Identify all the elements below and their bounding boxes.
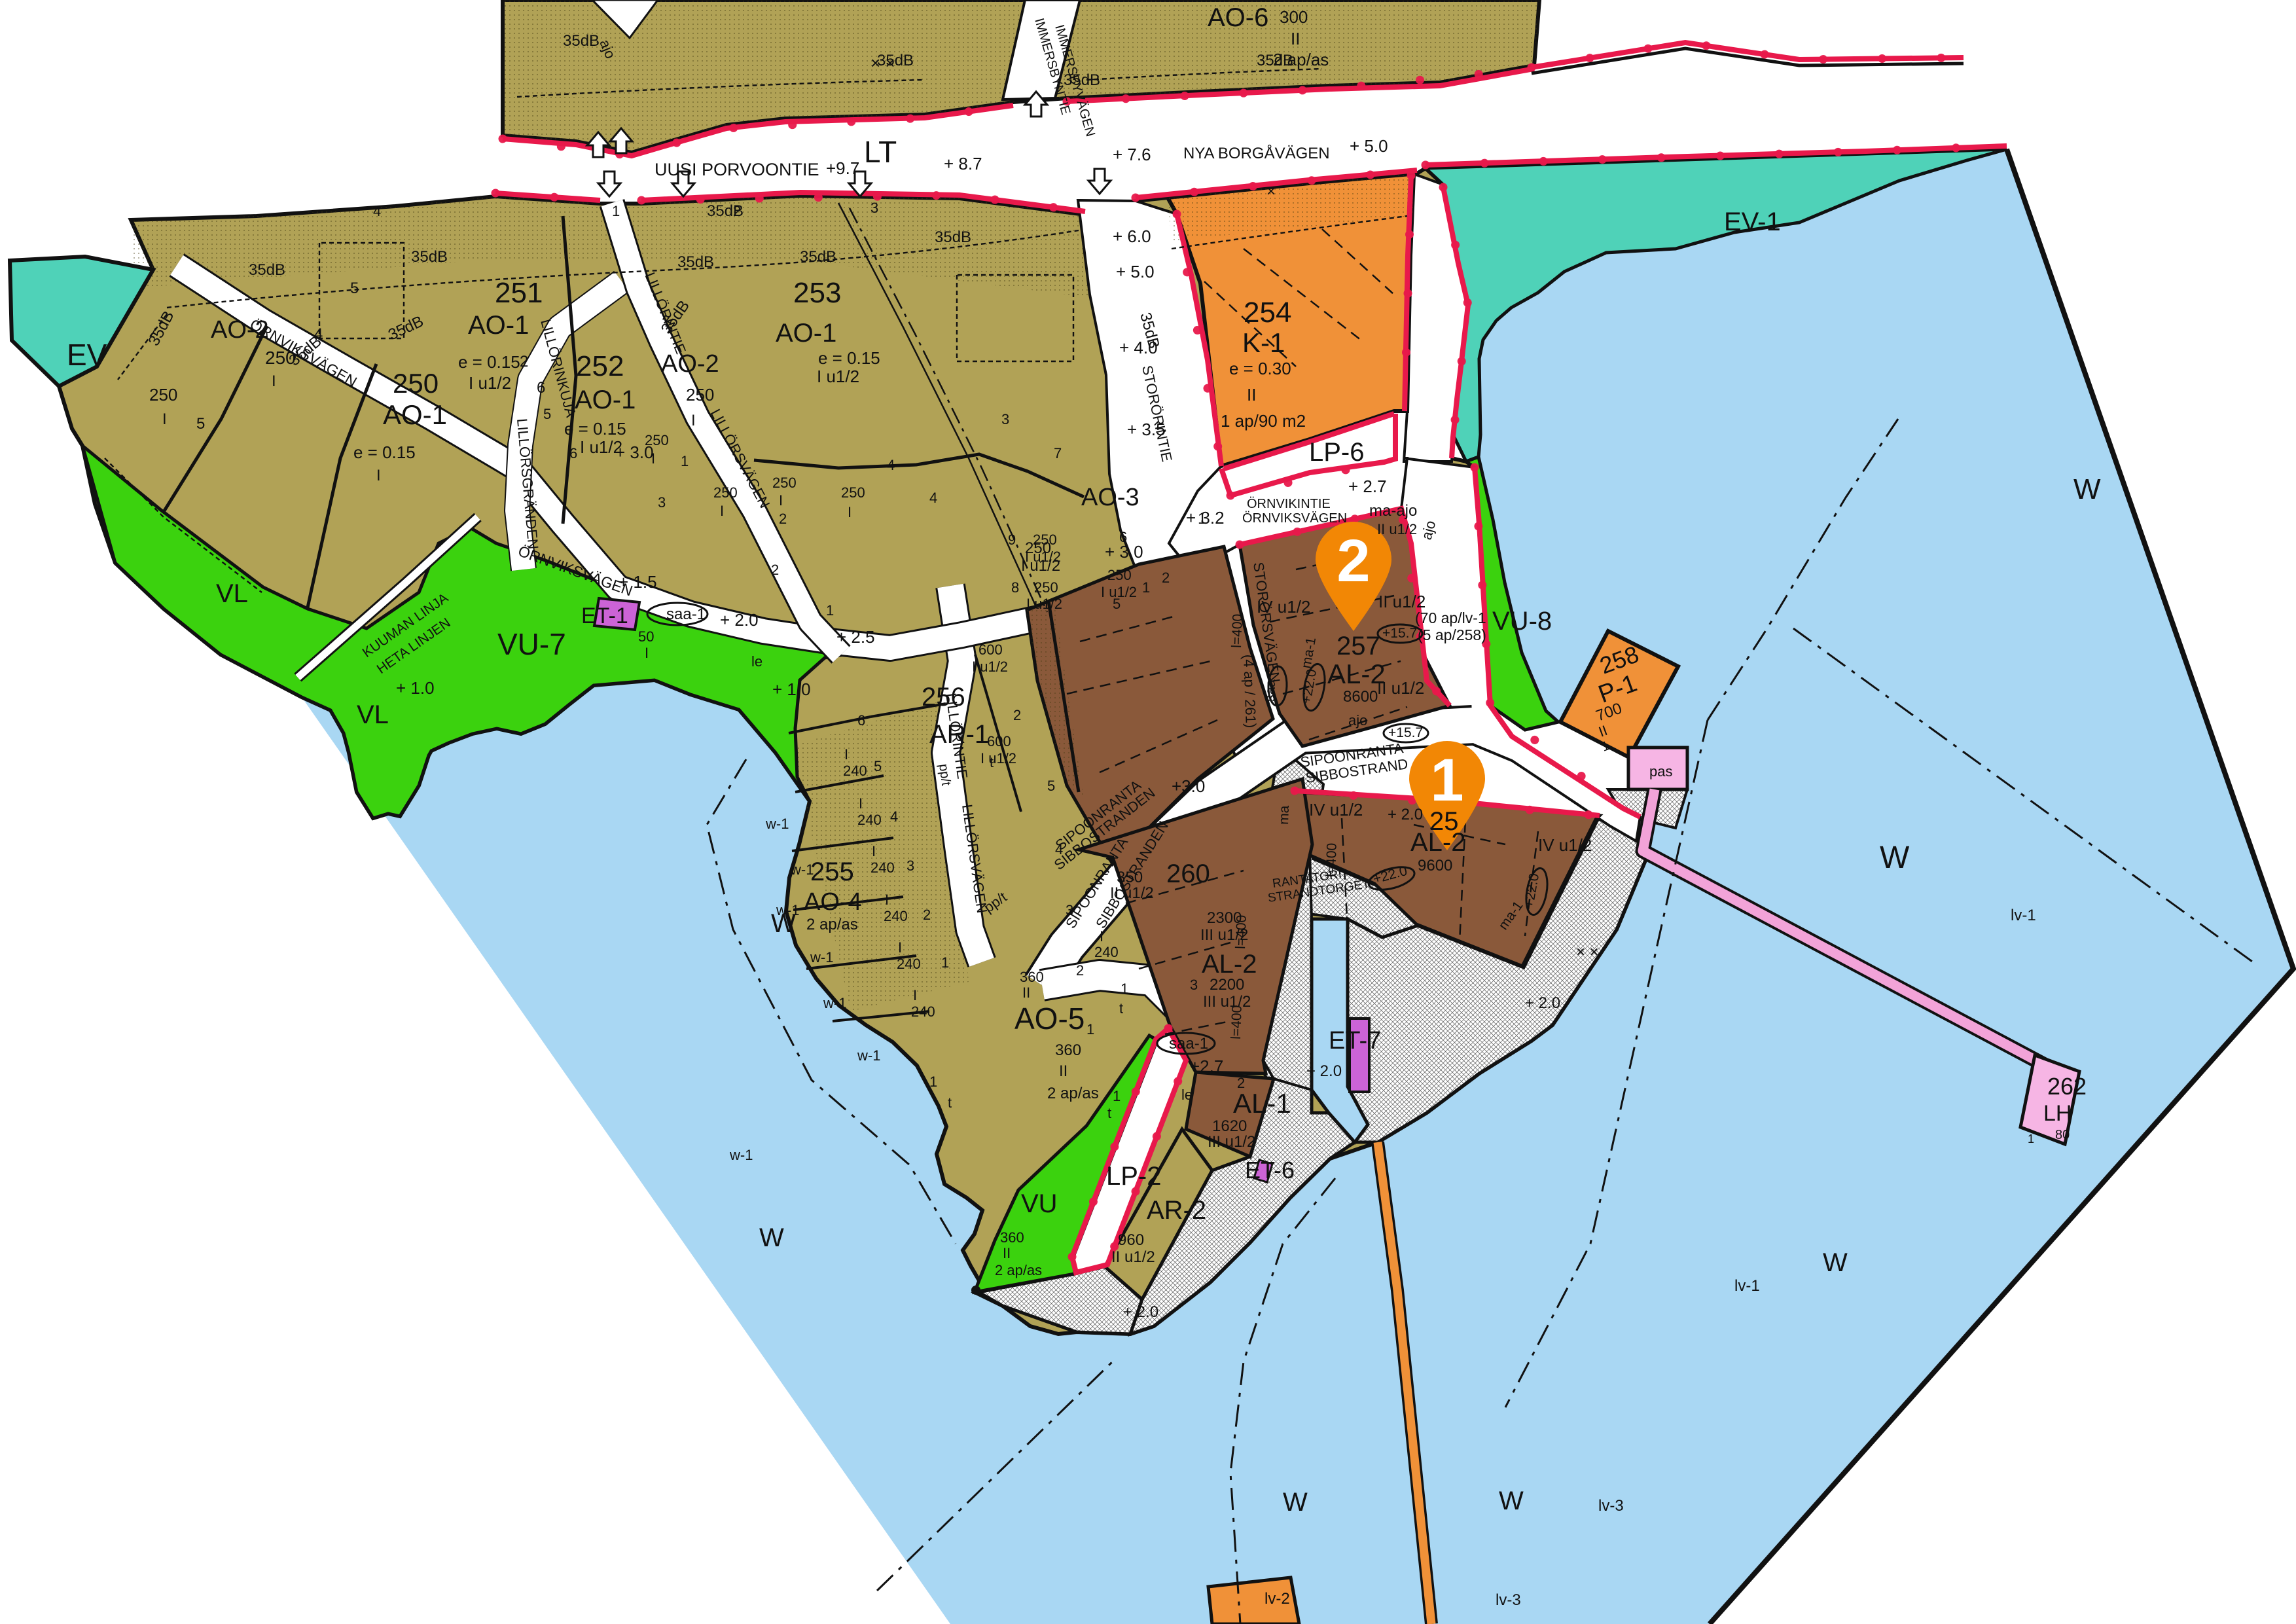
svg-text:+15.7: +15.7 <box>1382 626 1417 641</box>
svg-text:240: 240 <box>870 859 895 876</box>
svg-text:I u1/2: I u1/2 <box>1025 549 1061 565</box>
svg-text:I: I <box>779 492 783 509</box>
svg-text:35dB: 35dB <box>411 248 448 266</box>
svg-text:AO-1: AO-1 <box>468 311 529 340</box>
svg-text:3: 3 <box>1190 977 1198 993</box>
svg-text:2: 2 <box>771 562 779 578</box>
svg-text:EV-1: EV-1 <box>1724 208 1781 236</box>
svg-text:+ 5.0: + 5.0 <box>1350 136 1388 156</box>
svg-text:VU-7: VU-7 <box>497 627 566 661</box>
svg-text:+ 1.0: + 1.0 <box>396 678 435 698</box>
svg-text:t: t <box>1107 1105 1111 1121</box>
svg-text:(4 ap / 261): (4 ap / 261) <box>1240 654 1259 728</box>
svg-text:250: 250 <box>645 432 669 448</box>
svg-text:3: 3 <box>658 494 666 511</box>
svg-text:lv-2: lv-2 <box>1265 1590 1290 1608</box>
svg-text:EV: EV <box>67 338 107 372</box>
svg-text:+ 2.5: + 2.5 <box>836 627 875 647</box>
svg-text:I: I <box>885 892 889 908</box>
svg-text:I: I <box>162 410 167 428</box>
svg-text:II: II <box>1003 1245 1011 1261</box>
svg-text:AO-1: AO-1 <box>383 399 447 430</box>
svg-text:NYA BORGÅVÄGEN: NYA BORGÅVÄGEN <box>1183 144 1330 162</box>
svg-text:lv-3: lv-3 <box>1598 1497 1624 1515</box>
svg-text:lv-1: lv-1 <box>1734 1277 1760 1295</box>
svg-text:w-1: w-1 <box>765 816 789 832</box>
svg-text:252: 252 <box>576 350 624 382</box>
svg-text:LP-2: LP-2 <box>1106 1162 1162 1191</box>
svg-text:ET-6: ET-6 <box>1245 1157 1295 1183</box>
svg-text:254: 254 <box>1244 297 1291 329</box>
svg-text:35dB: 35dB <box>1257 52 1293 69</box>
svg-text:1 ap/90 m2: 1 ap/90 m2 <box>1221 411 1306 431</box>
svg-text:l=400: l=400 <box>1323 842 1340 877</box>
svg-text:AO-6: AO-6 <box>1208 3 1268 32</box>
svg-text:+ 2.0: + 2.0 <box>720 610 759 630</box>
svg-text:6: 6 <box>857 712 865 729</box>
svg-text:I: I <box>376 467 381 484</box>
svg-text:lv-3: lv-3 <box>1496 1591 1521 1609</box>
svg-text:1: 1 <box>1113 1088 1121 1104</box>
svg-text:250: 250 <box>393 368 439 399</box>
svg-text:w-1: w-1 <box>823 995 846 1011</box>
svg-text:I: I <box>1100 928 1103 945</box>
svg-text:pas: pas <box>1649 763 1672 780</box>
svg-text:1: 1 <box>1430 747 1463 814</box>
svg-text:360: 360 <box>1055 1041 1081 1059</box>
svg-text:× ×: × × <box>870 53 895 73</box>
svg-text:1: 1 <box>1198 510 1206 528</box>
svg-text:× ×: × × <box>1576 943 1599 961</box>
svg-text:1: 1 <box>1086 1021 1094 1038</box>
svg-text:2 ap/as: 2 ap/as <box>1047 1085 1099 1102</box>
svg-text:1: 1 <box>826 602 834 619</box>
svg-text:II: II <box>1247 385 1256 405</box>
svg-text:4: 4 <box>929 490 937 506</box>
svg-text:e = 0.15: e = 0.15 <box>818 348 880 368</box>
svg-text:+ 2.0: + 2.0 <box>1306 1062 1342 1080</box>
svg-text:t: t <box>948 1094 952 1111</box>
svg-text:251: 251 <box>495 277 543 309</box>
svg-text:2: 2 <box>1237 1075 1245 1091</box>
svg-text:I u1/2: I u1/2 <box>469 373 511 393</box>
svg-text:262: 262 <box>2047 1073 2087 1100</box>
svg-text:+2.7: +2.7 <box>1190 1056 1223 1076</box>
svg-text:3: 3 <box>906 857 914 874</box>
svg-text:×: × <box>1266 183 1276 200</box>
svg-text:VU: VU <box>1021 1189 1058 1218</box>
svg-text:240: 240 <box>897 956 921 972</box>
svg-text:260: 260 <box>1166 859 1210 888</box>
svg-text:2: 2 <box>733 203 741 219</box>
svg-text:w-1: w-1 <box>857 1047 880 1064</box>
svg-text:pp/t: pp/t <box>936 763 953 787</box>
svg-text:e = 0.15: e = 0.15 <box>564 419 626 439</box>
svg-text:AO-3: AO-3 <box>1081 484 1139 511</box>
svg-text:AO-2: AO-2 <box>661 350 719 378</box>
svg-text:35dB: 35dB <box>677 253 714 271</box>
svg-text:w-1: w-1 <box>729 1147 753 1163</box>
svg-text:I: I <box>691 412 696 429</box>
svg-text:+ 6.0: + 6.0 <box>1113 226 1151 246</box>
svg-text:3: 3 <box>1001 411 1009 427</box>
svg-text:I: I <box>848 504 852 520</box>
svg-text:e = 0.15: e = 0.15 <box>458 352 520 372</box>
svg-text:2: 2 <box>779 511 787 527</box>
svg-text:LT: LT <box>864 135 897 169</box>
svg-text:4: 4 <box>890 808 898 825</box>
svg-text:w-1: w-1 <box>810 949 833 965</box>
svg-text:W: W <box>1880 840 1910 875</box>
svg-text:+ 5.0: + 5.0 <box>1116 262 1155 281</box>
svg-text:(70 ap/lv-1: (70 ap/lv-1 <box>1415 609 1486 626</box>
svg-text:I u1/2: I u1/2 <box>980 750 1016 767</box>
svg-text:1: 1 <box>612 203 620 219</box>
svg-text:W: W <box>2073 473 2101 505</box>
svg-text:35dB: 35dB <box>800 248 836 266</box>
svg-text:35dB: 35dB <box>1064 71 1100 89</box>
svg-text:AL-2: AL-2 <box>1327 659 1386 689</box>
svg-text:1: 1 <box>681 453 689 469</box>
svg-text:ma-ajo: ma-ajo <box>1369 502 1417 520</box>
svg-text:I u1/2: I u1/2 <box>1026 596 1062 612</box>
svg-text:AL-1: AL-1 <box>1233 1088 1291 1119</box>
svg-text:+ 2.7: + 2.7 <box>1348 477 1387 496</box>
svg-text:250: 250 <box>1107 567 1132 583</box>
svg-text:6: 6 <box>569 445 577 461</box>
svg-text:I u1/2: I u1/2 <box>817 367 859 386</box>
svg-text:4: 4 <box>887 457 895 473</box>
svg-text:I u1/2: I u1/2 <box>972 659 1008 675</box>
svg-text:80: 80 <box>2055 1128 2070 1142</box>
svg-text:I: I <box>898 939 902 956</box>
svg-text:5: 5 <box>1047 778 1055 794</box>
svg-text:II u1/2: II u1/2 <box>1377 521 1417 537</box>
svg-text:2: 2 <box>1336 528 1370 594</box>
svg-text:I: I <box>844 746 848 763</box>
svg-text:2 ap/as: 2 ap/as <box>995 1262 1042 1278</box>
svg-text:1: 1 <box>1121 981 1128 997</box>
svg-text:le: le <box>1181 1087 1193 1103</box>
svg-text:50: 50 <box>638 628 654 645</box>
svg-text:5: 5 <box>874 758 882 774</box>
svg-text:VL: VL <box>357 700 389 729</box>
svg-text:240: 240 <box>884 908 908 924</box>
svg-text:35dB: 35dB <box>563 32 600 50</box>
svg-text:5: 5 <box>350 280 359 297</box>
svg-text:600: 600 <box>987 733 1011 749</box>
svg-text:saa: saa <box>1263 679 1278 702</box>
svg-text:W: W <box>1283 1488 1308 1517</box>
svg-text:9600: 9600 <box>1418 857 1452 875</box>
svg-text:LP-6: LP-6 <box>1309 438 1365 467</box>
svg-text:250: 250 <box>1033 532 1057 548</box>
svg-text:+3.0: +3.0 <box>1172 776 1205 796</box>
svg-text:1: 1 <box>2028 1132 2034 1146</box>
svg-text:(5 ap/258): (5 ap/258) <box>1418 626 1486 643</box>
svg-text:5: 5 <box>196 415 205 433</box>
svg-text:AL-2: AL-2 <box>1202 950 1257 979</box>
svg-text:2: 2 <box>1162 569 1170 586</box>
svg-text:I: I <box>913 987 917 1003</box>
svg-text:I: I <box>645 645 649 661</box>
svg-text:IV u1/2: IV u1/2 <box>1538 835 1592 855</box>
svg-text:+ 2.0: + 2.0 <box>1123 1303 1158 1321</box>
svg-text:VL: VL <box>216 579 248 608</box>
svg-text:35dB: 35dB <box>249 261 285 279</box>
svg-text:II: II <box>1291 29 1300 48</box>
svg-text:25: 25 <box>1429 807 1459 836</box>
svg-text:AO-5: AO-5 <box>1014 1001 1085 1036</box>
svg-text:3: 3 <box>870 200 878 216</box>
svg-text:ET-1: ET-1 <box>581 604 628 628</box>
svg-text:2: 2 <box>520 353 528 370</box>
svg-text:1: 1 <box>929 1074 937 1090</box>
svg-text:ajo: ajo <box>1348 712 1367 729</box>
svg-text:360: 360 <box>1000 1229 1024 1246</box>
svg-text:600: 600 <box>978 641 1003 658</box>
svg-text:+ 1.0: + 1.0 <box>772 679 811 699</box>
svg-text:+15.7: +15.7 <box>1388 725 1423 740</box>
svg-text:5: 5 <box>1113 596 1121 612</box>
svg-text:t: t <box>990 754 994 770</box>
svg-text:35dB: 35dB <box>935 228 971 246</box>
svg-text:I: I <box>872 843 876 859</box>
svg-text:I: I <box>720 503 724 519</box>
svg-text:e = 0.30: e = 0.30 <box>1229 359 1291 378</box>
svg-text:saa-1: saa-1 <box>1169 1035 1208 1053</box>
svg-text:3: 3 <box>1066 902 1073 918</box>
svg-text:W: W <box>1499 1487 1524 1515</box>
svg-text:IV u1/2: IV u1/2 <box>1309 800 1363 820</box>
svg-text:I: I <box>859 795 863 812</box>
svg-text:240: 240 <box>857 812 882 828</box>
svg-text:+ 8.7: + 8.7 <box>944 154 982 173</box>
svg-text:8600: 8600 <box>1343 688 1378 706</box>
svg-text:AO-1: AO-1 <box>575 386 636 414</box>
svg-text:240: 240 <box>843 763 867 779</box>
svg-text:VU-8: VU-8 <box>1492 607 1552 636</box>
svg-text:5: 5 <box>543 406 551 422</box>
svg-text:l=400: l=400 <box>1229 613 1246 648</box>
svg-text:2: 2 <box>1076 962 1084 979</box>
svg-text:253: 253 <box>793 277 841 309</box>
svg-text:2200: 2200 <box>1210 976 1244 994</box>
svg-text:II: II <box>1022 984 1030 1001</box>
svg-text:6: 6 <box>537 379 545 397</box>
svg-text:e = 0.15: e = 0.15 <box>353 442 416 462</box>
svg-text:l=400: l=400 <box>1233 914 1249 949</box>
svg-text:2: 2 <box>1013 707 1021 723</box>
svg-text:II: II <box>1059 1062 1067 1080</box>
svg-text:2: 2 <box>923 907 931 923</box>
svg-text:I: I <box>272 372 276 390</box>
svg-text:250: 250 <box>686 385 714 405</box>
svg-text:ET-7: ET-7 <box>1329 1027 1381 1055</box>
svg-text:255: 255 <box>810 857 854 886</box>
svg-text:K-1: K-1 <box>1242 327 1285 358</box>
svg-text:250: 250 <box>149 385 177 405</box>
svg-text:250: 250 <box>772 475 797 491</box>
svg-text:le: le <box>751 653 762 670</box>
svg-text:AO-1: AO-1 <box>776 319 836 348</box>
svg-text:UUSI PORVOONTIE: UUSI PORVOONTIE <box>655 160 819 179</box>
svg-text:1: 1 <box>941 954 949 971</box>
svg-text:+ 7.6: + 7.6 <box>1113 145 1151 164</box>
svg-text:9: 9 <box>1008 532 1016 548</box>
svg-text:ma: ma <box>1276 805 1292 825</box>
svg-text:250: 250 <box>841 484 865 501</box>
svg-text:240: 240 <box>911 1003 935 1020</box>
svg-text:LH: LH <box>2043 1101 2072 1126</box>
svg-text:+ 2.0: + 2.0 <box>1388 806 1423 823</box>
svg-text:t: t <box>1119 1000 1123 1017</box>
svg-text:1620: 1620 <box>1212 1117 1247 1135</box>
svg-text:4: 4 <box>1055 841 1063 857</box>
svg-text:l=400: l=400 <box>1229 1005 1245 1039</box>
svg-text:250: 250 <box>1034 579 1058 596</box>
svg-text:III u1/2: III u1/2 <box>1208 1133 1255 1151</box>
svg-text:AR-2: AR-2 <box>1147 1196 1206 1225</box>
svg-text:7: 7 <box>1054 445 1062 461</box>
svg-text:4: 4 <box>373 203 381 219</box>
svg-text:ÖRNVIKSVÄGEN: ÖRNVIKSVÄGEN <box>1242 511 1347 526</box>
svg-text:960: 960 <box>1118 1231 1144 1249</box>
svg-text:8: 8 <box>1011 579 1019 596</box>
svg-text:II u1/2: II u1/2 <box>1111 1248 1155 1266</box>
svg-text:2 ap/as: 2 ap/as <box>806 916 858 933</box>
svg-text:257: 257 <box>1336 632 1380 660</box>
svg-text:lv-1: lv-1 <box>2011 907 2036 924</box>
svg-text:w-1: w-1 <box>776 902 799 918</box>
svg-text:6: 6 <box>1119 529 1127 545</box>
svg-text:300: 300 <box>1280 7 1308 27</box>
svg-text:ÖRNVIKINTIE: ÖRNVIKINTIE <box>1247 497 1331 511</box>
svg-text:W: W <box>759 1223 784 1252</box>
svg-text:1: 1 <box>1142 579 1150 596</box>
svg-text:250: 250 <box>713 484 738 501</box>
svg-text:240: 240 <box>1094 944 1119 960</box>
svg-text:I: I <box>651 450 655 467</box>
svg-text:AO-4: AO-4 <box>804 888 862 916</box>
svg-text:II u1/2: II u1/2 <box>1378 592 1426 611</box>
svg-text:+ 2.0: + 2.0 <box>1525 994 1560 1012</box>
svg-text:W: W <box>1823 1248 1848 1277</box>
svg-text:w-1: w-1 <box>790 861 814 878</box>
svg-text:+9.7: +9.7 <box>826 158 859 178</box>
svg-text:360: 360 <box>1020 969 1044 985</box>
